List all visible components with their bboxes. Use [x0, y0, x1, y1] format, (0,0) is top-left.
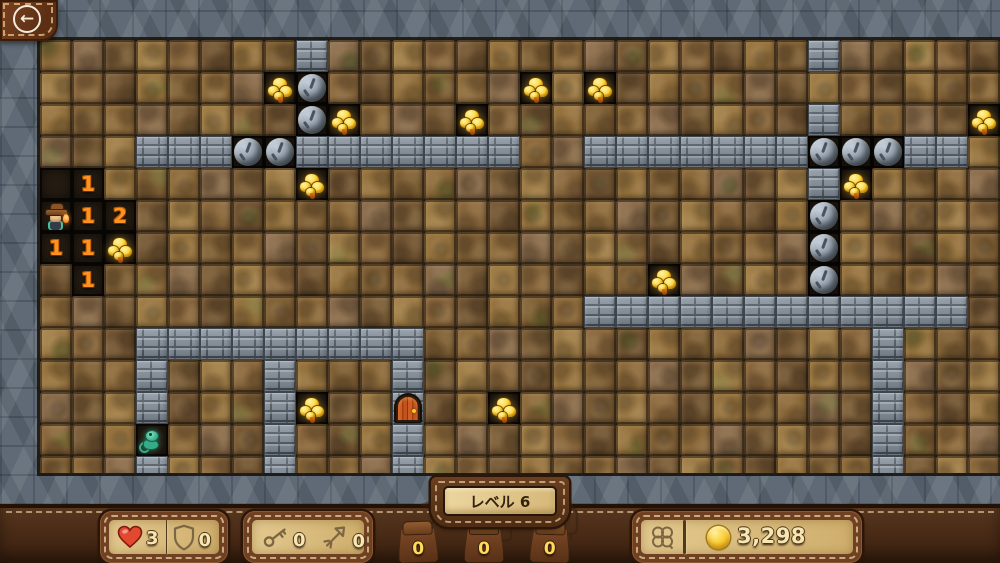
- tile-dirt[interactable]: [296, 360, 328, 392]
- tile-dirt[interactable]: [936, 72, 968, 104]
- tile-dirt[interactable]: [328, 456, 360, 473]
- tile-gold[interactable]: [264, 72, 296, 104]
- mine-field[interactable]: 112111: [40, 40, 1000, 473]
- tile-dirt[interactable]: [552, 456, 584, 473]
- tile-dirt[interactable]: [264, 296, 296, 328]
- tile-dirt[interactable]: [104, 456, 136, 473]
- tile-dirt[interactable]: [520, 200, 552, 232]
- tile-dirt[interactable]: [616, 168, 648, 200]
- tile-dirt[interactable]: [200, 40, 232, 72]
- tile-dirt[interactable]: [776, 40, 808, 72]
- tile-dirt[interactable]: [168, 264, 200, 296]
- tile-dirt[interactable]: [680, 104, 712, 136]
- tile-creature[interactable]: [136, 424, 168, 456]
- tile-dirt[interactable]: [904, 72, 936, 104]
- tile-dirt[interactable]: [520, 104, 552, 136]
- tile-brick-wall[interactable]: [648, 296, 680, 328]
- tile-dirt[interactable]: [104, 328, 136, 360]
- tile-dirt[interactable]: [232, 360, 264, 392]
- tile-dirt[interactable]: [840, 72, 872, 104]
- tile-dirt[interactable]: [680, 392, 712, 424]
- tile-dirt[interactable]: [616, 424, 648, 456]
- tile-dirt[interactable]: [168, 72, 200, 104]
- tile-dirt[interactable]: [968, 40, 1000, 72]
- tile-dirt[interactable]: [840, 40, 872, 72]
- tile-dirt[interactable]: [40, 328, 72, 360]
- pouch-slot-pickaxe[interactable]: 0: [395, 520, 440, 563]
- tile-dirt[interactable]: [488, 200, 520, 232]
- tile-dirt[interactable]: [392, 232, 424, 264]
- tile-dirt[interactable]: [840, 328, 872, 360]
- tile-brick-wall[interactable]: [872, 360, 904, 392]
- tile-dirt[interactable]: [712, 456, 744, 473]
- tile-gold[interactable]: [968, 104, 1000, 136]
- tile-dirt[interactable]: [840, 392, 872, 424]
- tile-brick-wall[interactable]: [136, 456, 168, 473]
- tile-brick-wall[interactable]: [264, 456, 296, 473]
- tile-dirt[interactable]: [232, 456, 264, 473]
- tile-dirt[interactable]: [648, 168, 680, 200]
- tile-dirt[interactable]: [968, 264, 1000, 296]
- tile-brick-wall[interactable]: [360, 136, 392, 168]
- tile-dirt[interactable]: [488, 360, 520, 392]
- tile-dirt[interactable]: [264, 264, 296, 296]
- tile-dirt[interactable]: [840, 456, 872, 473]
- tile-dirt[interactable]: [168, 104, 200, 136]
- tile-dirt[interactable]: [968, 200, 1000, 232]
- tile-dirt[interactable]: [904, 456, 936, 473]
- tile-dirt[interactable]: [488, 424, 520, 456]
- tile-dirt[interactable]: [104, 296, 136, 328]
- tile-dirt[interactable]: [968, 232, 1000, 264]
- tile-dirt[interactable]: [456, 168, 488, 200]
- door[interactable]: [396, 395, 420, 422]
- tile-dirt[interactable]: [904, 168, 936, 200]
- tile-dirt[interactable]: [136, 40, 168, 72]
- tile-dirt[interactable]: [904, 200, 936, 232]
- tile-dirt[interactable]: [296, 232, 328, 264]
- tile-brick-wall[interactable]: [712, 296, 744, 328]
- tile-dirt[interactable]: [360, 168, 392, 200]
- tile-gold[interactable]: [328, 104, 360, 136]
- tile-dirt[interactable]: [840, 264, 872, 296]
- tile-dirt[interactable]: [136, 72, 168, 104]
- tile-dirt[interactable]: [904, 232, 936, 264]
- tile-brick-wall[interactable]: [136, 392, 168, 424]
- tile-dirt[interactable]: [72, 136, 104, 168]
- tile-dirt[interactable]: [264, 232, 296, 264]
- tile-dirt[interactable]: [168, 168, 200, 200]
- tile-dirt[interactable]: [968, 328, 1000, 360]
- tile-dirt[interactable]: [744, 168, 776, 200]
- tile-dirt[interactable]: [328, 392, 360, 424]
- tile-dirt[interactable]: [712, 232, 744, 264]
- tile-dirt[interactable]: [552, 296, 584, 328]
- tile-dirt[interactable]: [744, 264, 776, 296]
- tile-dirt[interactable]: [552, 104, 584, 136]
- tile-dirt[interactable]: [104, 40, 136, 72]
- tile-dirt[interactable]: [200, 72, 232, 104]
- tile-dirt[interactable]: [424, 232, 456, 264]
- tile-dirt[interactable]: [712, 264, 744, 296]
- tile-dirt[interactable]: [904, 392, 936, 424]
- tile-dirt[interactable]: [392, 296, 424, 328]
- tile-dirt[interactable]: [552, 392, 584, 424]
- tile-dirt[interactable]: [456, 360, 488, 392]
- tile-dirt[interactable]: [744, 104, 776, 136]
- tile-brick-wall[interactable]: [808, 40, 840, 72]
- back-button[interactable]: ←: [0, 0, 58, 41]
- tile-dirt[interactable]: [104, 72, 136, 104]
- tile-dirt[interactable]: [200, 104, 232, 136]
- tile-dirt[interactable]: [456, 72, 488, 104]
- tile-boulder[interactable]: [872, 136, 904, 168]
- tile-brick-wall[interactable]: [872, 456, 904, 473]
- tile-dirt[interactable]: [424, 40, 456, 72]
- tile-dirt[interactable]: [456, 232, 488, 264]
- tile-dirt[interactable]: [72, 72, 104, 104]
- tile-dirt[interactable]: [360, 424, 392, 456]
- tile-dirt[interactable]: [136, 232, 168, 264]
- tile-dirt[interactable]: [456, 328, 488, 360]
- tile-dirt[interactable]: [72, 360, 104, 392]
- tile-boulder[interactable]: [808, 264, 840, 296]
- tile-dirt[interactable]: [680, 40, 712, 72]
- tile-dirt[interactable]: [200, 456, 232, 473]
- tile-dirt[interactable]: [616, 232, 648, 264]
- tile-dirt[interactable]: [424, 456, 456, 473]
- tile-brick-wall[interactable]: [872, 424, 904, 456]
- tile-dirt[interactable]: [744, 424, 776, 456]
- tile-dirt[interactable]: [264, 168, 296, 200]
- tile-dirt[interactable]: [712, 72, 744, 104]
- tile-dirt[interactable]: [968, 424, 1000, 456]
- tile-dirt[interactable]: [328, 168, 360, 200]
- tile-dirt[interactable]: [104, 136, 136, 168]
- tile-boulder[interactable]: [296, 104, 328, 136]
- tile-dirt[interactable]: [424, 72, 456, 104]
- tile-dirt[interactable]: [200, 360, 232, 392]
- tile-dirt[interactable]: [328, 200, 360, 232]
- tile-dirt[interactable]: [584, 360, 616, 392]
- tile-dirt[interactable]: [648, 200, 680, 232]
- tile-brick-wall[interactable]: [904, 136, 936, 168]
- tile-dirt[interactable]: [936, 104, 968, 136]
- tile-brick-wall[interactable]: [456, 136, 488, 168]
- tile-dirt[interactable]: [456, 200, 488, 232]
- tile-dirt[interactable]: [776, 424, 808, 456]
- tile-brick-wall[interactable]: [904, 296, 936, 328]
- tile-boulder[interactable]: [264, 136, 296, 168]
- tile-boulder[interactable]: [808, 232, 840, 264]
- tile-dirt[interactable]: [648, 232, 680, 264]
- tile-gold[interactable]: [584, 72, 616, 104]
- tile-brick-wall[interactable]: [328, 328, 360, 360]
- tile-brick-wall[interactable]: [744, 296, 776, 328]
- tile-brick-wall[interactable]: [360, 328, 392, 360]
- tile-brick-wall[interactable]: [648, 136, 680, 168]
- tile-gold[interactable]: [488, 392, 520, 424]
- tile-dirt[interactable]: [680, 72, 712, 104]
- tile-dirt[interactable]: [520, 360, 552, 392]
- tile-dirt[interactable]: [808, 456, 840, 473]
- tile-dirt[interactable]: [488, 328, 520, 360]
- tile-dirt[interactable]: [200, 296, 232, 328]
- tile-dirt[interactable]: [616, 328, 648, 360]
- tile-dirt[interactable]: [136, 296, 168, 328]
- tile-dirt[interactable]: [584, 232, 616, 264]
- tile-brick-wall[interactable]: [424, 136, 456, 168]
- tile-dirt[interactable]: [296, 456, 328, 473]
- tile-dirt[interactable]: [104, 104, 136, 136]
- tile-dirt[interactable]: [872, 232, 904, 264]
- tile-dirt[interactable]: [744, 40, 776, 72]
- tile-dirt[interactable]: [648, 104, 680, 136]
- tile-brick-wall[interactable]: [776, 136, 808, 168]
- tile-dirt[interactable]: [680, 264, 712, 296]
- tile-dirt[interactable]: [776, 72, 808, 104]
- tile-dirt[interactable]: [616, 392, 648, 424]
- tile-brick-wall[interactable]: [392, 424, 424, 456]
- tile-dirt[interactable]: [968, 360, 1000, 392]
- tile-dirt[interactable]: [232, 168, 264, 200]
- tile-dirt[interactable]: [392, 168, 424, 200]
- tile-dirt[interactable]: [328, 296, 360, 328]
- tile-number-1[interactable]: 1: [72, 264, 104, 296]
- tile-dirt[interactable]: [808, 328, 840, 360]
- tile-dirt[interactable]: [72, 392, 104, 424]
- tile-brick-wall[interactable]: [616, 296, 648, 328]
- tile-dirt[interactable]: [616, 456, 648, 473]
- tile-dirt[interactable]: [392, 264, 424, 296]
- tile-dirt[interactable]: [40, 72, 72, 104]
- tile-dirt[interactable]: [776, 232, 808, 264]
- tile-dirt[interactable]: [616, 200, 648, 232]
- tile-dirt[interactable]: [392, 104, 424, 136]
- tile-dirt[interactable]: [936, 232, 968, 264]
- tile-dirt[interactable]: [584, 168, 616, 200]
- tile-dirt[interactable]: [424, 104, 456, 136]
- tile-dirt[interactable]: [904, 40, 936, 72]
- tile-dirt[interactable]: [872, 72, 904, 104]
- tile-dirt[interactable]: [136, 200, 168, 232]
- tile-brick-wall[interactable]: [936, 296, 968, 328]
- tile-dirt[interactable]: [712, 168, 744, 200]
- tile-dirt[interactable]: [72, 104, 104, 136]
- tile-dirt[interactable]: [328, 360, 360, 392]
- tile-dirt[interactable]: [520, 136, 552, 168]
- tile-dirt[interactable]: [488, 232, 520, 264]
- tile-dirt[interactable]: [40, 360, 72, 392]
- tile-dirt[interactable]: [904, 360, 936, 392]
- tile-brick-wall[interactable]: [392, 328, 424, 360]
- tile-dirt[interactable]: [296, 424, 328, 456]
- tile-dirt[interactable]: [520, 328, 552, 360]
- tile-dirt[interactable]: [808, 392, 840, 424]
- tile-dirt[interactable]: [584, 328, 616, 360]
- tile-dirt[interactable]: [584, 456, 616, 473]
- tile-brick-wall[interactable]: [136, 136, 168, 168]
- tile-dirt[interactable]: [840, 360, 872, 392]
- tile-gold[interactable]: [104, 232, 136, 264]
- tile-dirt[interactable]: [648, 40, 680, 72]
- tile-dirt[interactable]: [808, 360, 840, 392]
- tile-dirt[interactable]: [488, 72, 520, 104]
- tile-dirt[interactable]: [360, 360, 392, 392]
- tile-dirt[interactable]: [264, 40, 296, 72]
- tile-boulder[interactable]: [840, 136, 872, 168]
- tile-brick-wall[interactable]: [808, 168, 840, 200]
- tile-dirt[interactable]: [232, 264, 264, 296]
- tile-dirt[interactable]: [424, 328, 456, 360]
- tile-dirt[interactable]: [488, 104, 520, 136]
- tile-dirt[interactable]: [488, 456, 520, 473]
- tile-dirt[interactable]: [552, 40, 584, 72]
- tile-dirt[interactable]: [680, 168, 712, 200]
- tile-dirt[interactable]: [584, 264, 616, 296]
- tile-dirt[interactable]: [872, 168, 904, 200]
- tile-dirt[interactable]: [648, 392, 680, 424]
- tile-dirt[interactable]: [776, 360, 808, 392]
- tile-brick-wall[interactable]: [808, 296, 840, 328]
- tile-dirt[interactable]: [552, 328, 584, 360]
- tile-dirt[interactable]: [40, 104, 72, 136]
- tile-dirt[interactable]: [872, 200, 904, 232]
- tile-number-1[interactable]: 1: [72, 168, 104, 200]
- tile-dirt[interactable]: [456, 264, 488, 296]
- tile-brick-wall[interactable]: [136, 360, 168, 392]
- tile-dirt[interactable]: [680, 456, 712, 473]
- tile-dirt[interactable]: [424, 200, 456, 232]
- tile-dirt[interactable]: [936, 264, 968, 296]
- tile-dirt[interactable]: [936, 328, 968, 360]
- tile-dirt[interactable]: [488, 296, 520, 328]
- tile-boulder[interactable]: [296, 72, 328, 104]
- tile-dirt[interactable]: [72, 40, 104, 72]
- tile-dirt[interactable]: [680, 424, 712, 456]
- tile-dirt[interactable]: [776, 104, 808, 136]
- tile-brick-wall[interactable]: [840, 296, 872, 328]
- tile-dirt[interactable]: [104, 264, 136, 296]
- tile-dirt[interactable]: [776, 168, 808, 200]
- tile-brick-wall[interactable]: [264, 424, 296, 456]
- tile-dirt[interactable]: [744, 72, 776, 104]
- tile-miner[interactable]: [40, 200, 72, 232]
- tile-dirt[interactable]: [424, 168, 456, 200]
- tile-dirt[interactable]: [104, 360, 136, 392]
- tile-dirt[interactable]: [584, 40, 616, 72]
- tile-boulder[interactable]: [808, 200, 840, 232]
- tile-brick-wall[interactable]: [200, 136, 232, 168]
- tile-dirt[interactable]: [744, 200, 776, 232]
- tile-dirt[interactable]: [232, 200, 264, 232]
- tile-dirt[interactable]: [936, 168, 968, 200]
- tile-dirt[interactable]: [936, 40, 968, 72]
- tile-dirt[interactable]: [136, 168, 168, 200]
- tile-brick-wall[interactable]: [392, 136, 424, 168]
- tile-dirt[interactable]: [424, 296, 456, 328]
- tile-dirt[interactable]: [680, 200, 712, 232]
- tile-gold[interactable]: [296, 168, 328, 200]
- tile-dirt[interactable]: [680, 360, 712, 392]
- tile-dirt[interactable]: [232, 40, 264, 72]
- tile-dirt[interactable]: [552, 360, 584, 392]
- tile-dirt[interactable]: [456, 296, 488, 328]
- tile-dirt[interactable]: [552, 200, 584, 232]
- tile-brick-wall[interactable]: [296, 328, 328, 360]
- tile-dirt[interactable]: [328, 40, 360, 72]
- tile-dirt[interactable]: [520, 456, 552, 473]
- tile-dirt[interactable]: [584, 200, 616, 232]
- tile-dirt[interactable]: [712, 360, 744, 392]
- tile-dirt[interactable]: [648, 456, 680, 473]
- tile-dirt[interactable]: [328, 424, 360, 456]
- tile-brick-wall[interactable]: [680, 296, 712, 328]
- tile-dirt[interactable]: [968, 72, 1000, 104]
- tile-dirt[interactable]: [104, 392, 136, 424]
- tile-brick-wall[interactable]: [136, 328, 168, 360]
- tile-dirt[interactable]: [488, 168, 520, 200]
- tile-number-1[interactable]: 1: [72, 232, 104, 264]
- tile-dirt[interactable]: [360, 104, 392, 136]
- tile-dirt[interactable]: [840, 200, 872, 232]
- tile-brick-wall[interactable]: [328, 136, 360, 168]
- tile-dirt[interactable]: [776, 328, 808, 360]
- tile-dirt[interactable]: [744, 328, 776, 360]
- tile-dirt[interactable]: [168, 360, 200, 392]
- tile-dirt[interactable]: [168, 40, 200, 72]
- tile-dirt[interactable]: [168, 200, 200, 232]
- tile-dirt[interactable]: [712, 328, 744, 360]
- tile-brick-wall[interactable]: [392, 456, 424, 473]
- tile-dirt[interactable]: [360, 392, 392, 424]
- tile-dirt[interactable]: [712, 392, 744, 424]
- tile-dirt[interactable]: [168, 456, 200, 473]
- tile-excavated[interactable]: [40, 168, 72, 200]
- tile-dirt[interactable]: [72, 424, 104, 456]
- tile-dirt[interactable]: [552, 72, 584, 104]
- tile-dirt[interactable]: [616, 104, 648, 136]
- tile-dirt[interactable]: [712, 200, 744, 232]
- tile-dirt[interactable]: [968, 392, 1000, 424]
- tile-brick-wall[interactable]: [264, 328, 296, 360]
- tile-dirt[interactable]: [232, 72, 264, 104]
- tile-dirt[interactable]: [40, 392, 72, 424]
- tile-dirt[interactable]: [936, 200, 968, 232]
- tile-dirt[interactable]: [936, 392, 968, 424]
- tile-dirt[interactable]: [360, 296, 392, 328]
- tile-number-1[interactable]: 1: [40, 232, 72, 264]
- tile-dirt[interactable]: [648, 424, 680, 456]
- tile-dirt[interactable]: [40, 296, 72, 328]
- tile-dirt[interactable]: [40, 136, 72, 168]
- tile-dirt[interactable]: [296, 296, 328, 328]
- tile-dirt[interactable]: [968, 456, 1000, 473]
- tile-dirt[interactable]: [200, 264, 232, 296]
- tile-dirt[interactable]: [200, 232, 232, 264]
- tile-dirt[interactable]: [968, 136, 1000, 168]
- tile-dirt[interactable]: [840, 232, 872, 264]
- tile-dirt[interactable]: [168, 232, 200, 264]
- tile-dirt[interactable]: [936, 424, 968, 456]
- tile-dirt[interactable]: [296, 200, 328, 232]
- tile-brick-wall[interactable]: [808, 104, 840, 136]
- tile-dirt[interactable]: [424, 424, 456, 456]
- tile-brick-wall[interactable]: [232, 328, 264, 360]
- tile-dirt[interactable]: [168, 296, 200, 328]
- tile-dirt[interactable]: [360, 264, 392, 296]
- tile-brick-wall[interactable]: [680, 136, 712, 168]
